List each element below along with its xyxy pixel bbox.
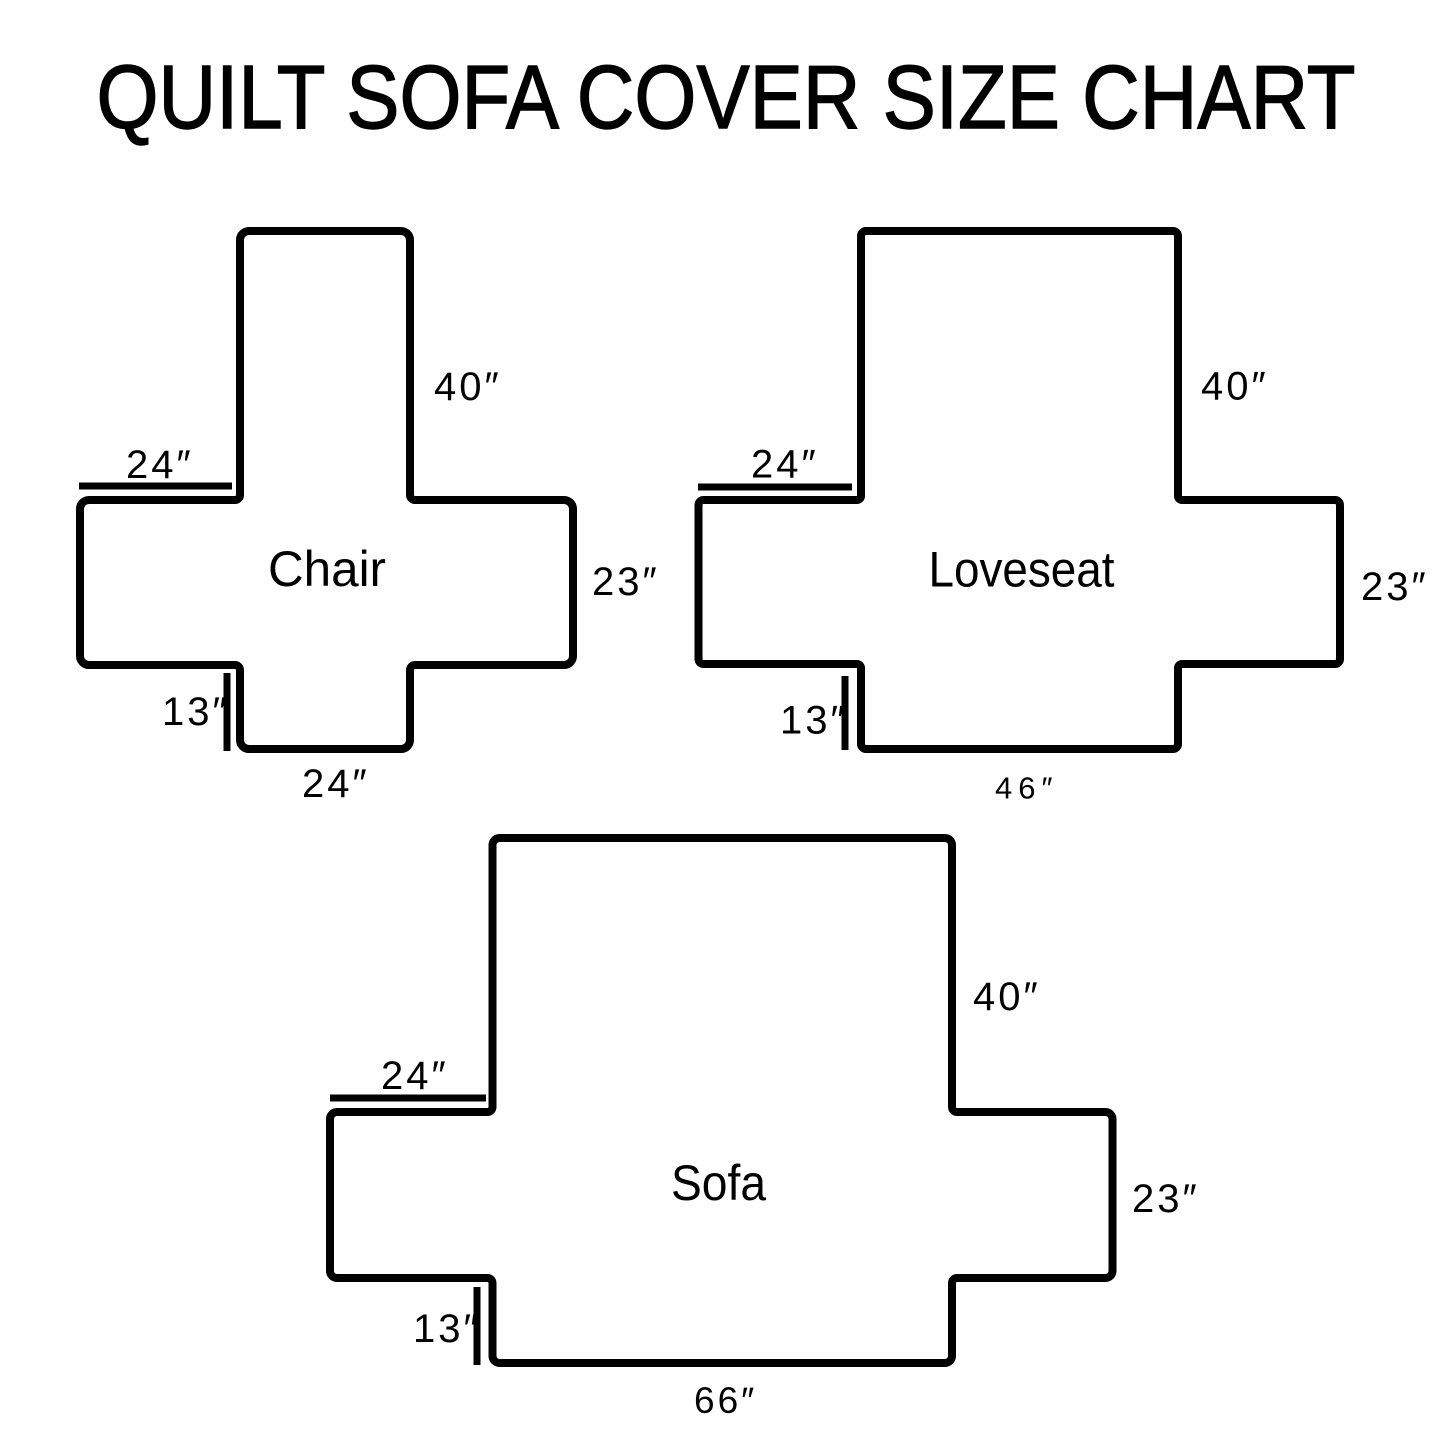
- svg-text:40″: 40″: [1201, 365, 1269, 409]
- svg-text:46″: 46″: [995, 771, 1058, 806]
- svg-text:13″: 13″: [413, 1307, 481, 1351]
- svg-text:QUILT SOFA COVER SIZE CHART: QUILT SOFA COVER SIZE CHART: [97, 48, 1356, 148]
- svg-text:Chair: Chair: [268, 541, 386, 597]
- svg-text:24″: 24″: [381, 1054, 449, 1098]
- svg-text:Loveseat: Loveseat: [929, 542, 1115, 598]
- svg-text:23″: 23″: [1132, 1177, 1200, 1221]
- svg-text:40″: 40″: [973, 975, 1041, 1019]
- svg-text:23″: 23″: [1361, 565, 1429, 609]
- svg-text:Sofa: Sofa: [671, 1155, 766, 1211]
- svg-text:24″: 24″: [302, 762, 370, 806]
- svg-text:24″: 24″: [751, 443, 819, 487]
- svg-text:24″: 24″: [126, 443, 194, 487]
- svg-text:40″: 40″: [434, 365, 502, 409]
- svg-text:23″: 23″: [592, 560, 660, 604]
- svg-text:13″: 13″: [780, 699, 848, 743]
- svg-text:13″: 13″: [162, 690, 230, 734]
- svg-text:66″: 66″: [694, 1380, 757, 1421]
